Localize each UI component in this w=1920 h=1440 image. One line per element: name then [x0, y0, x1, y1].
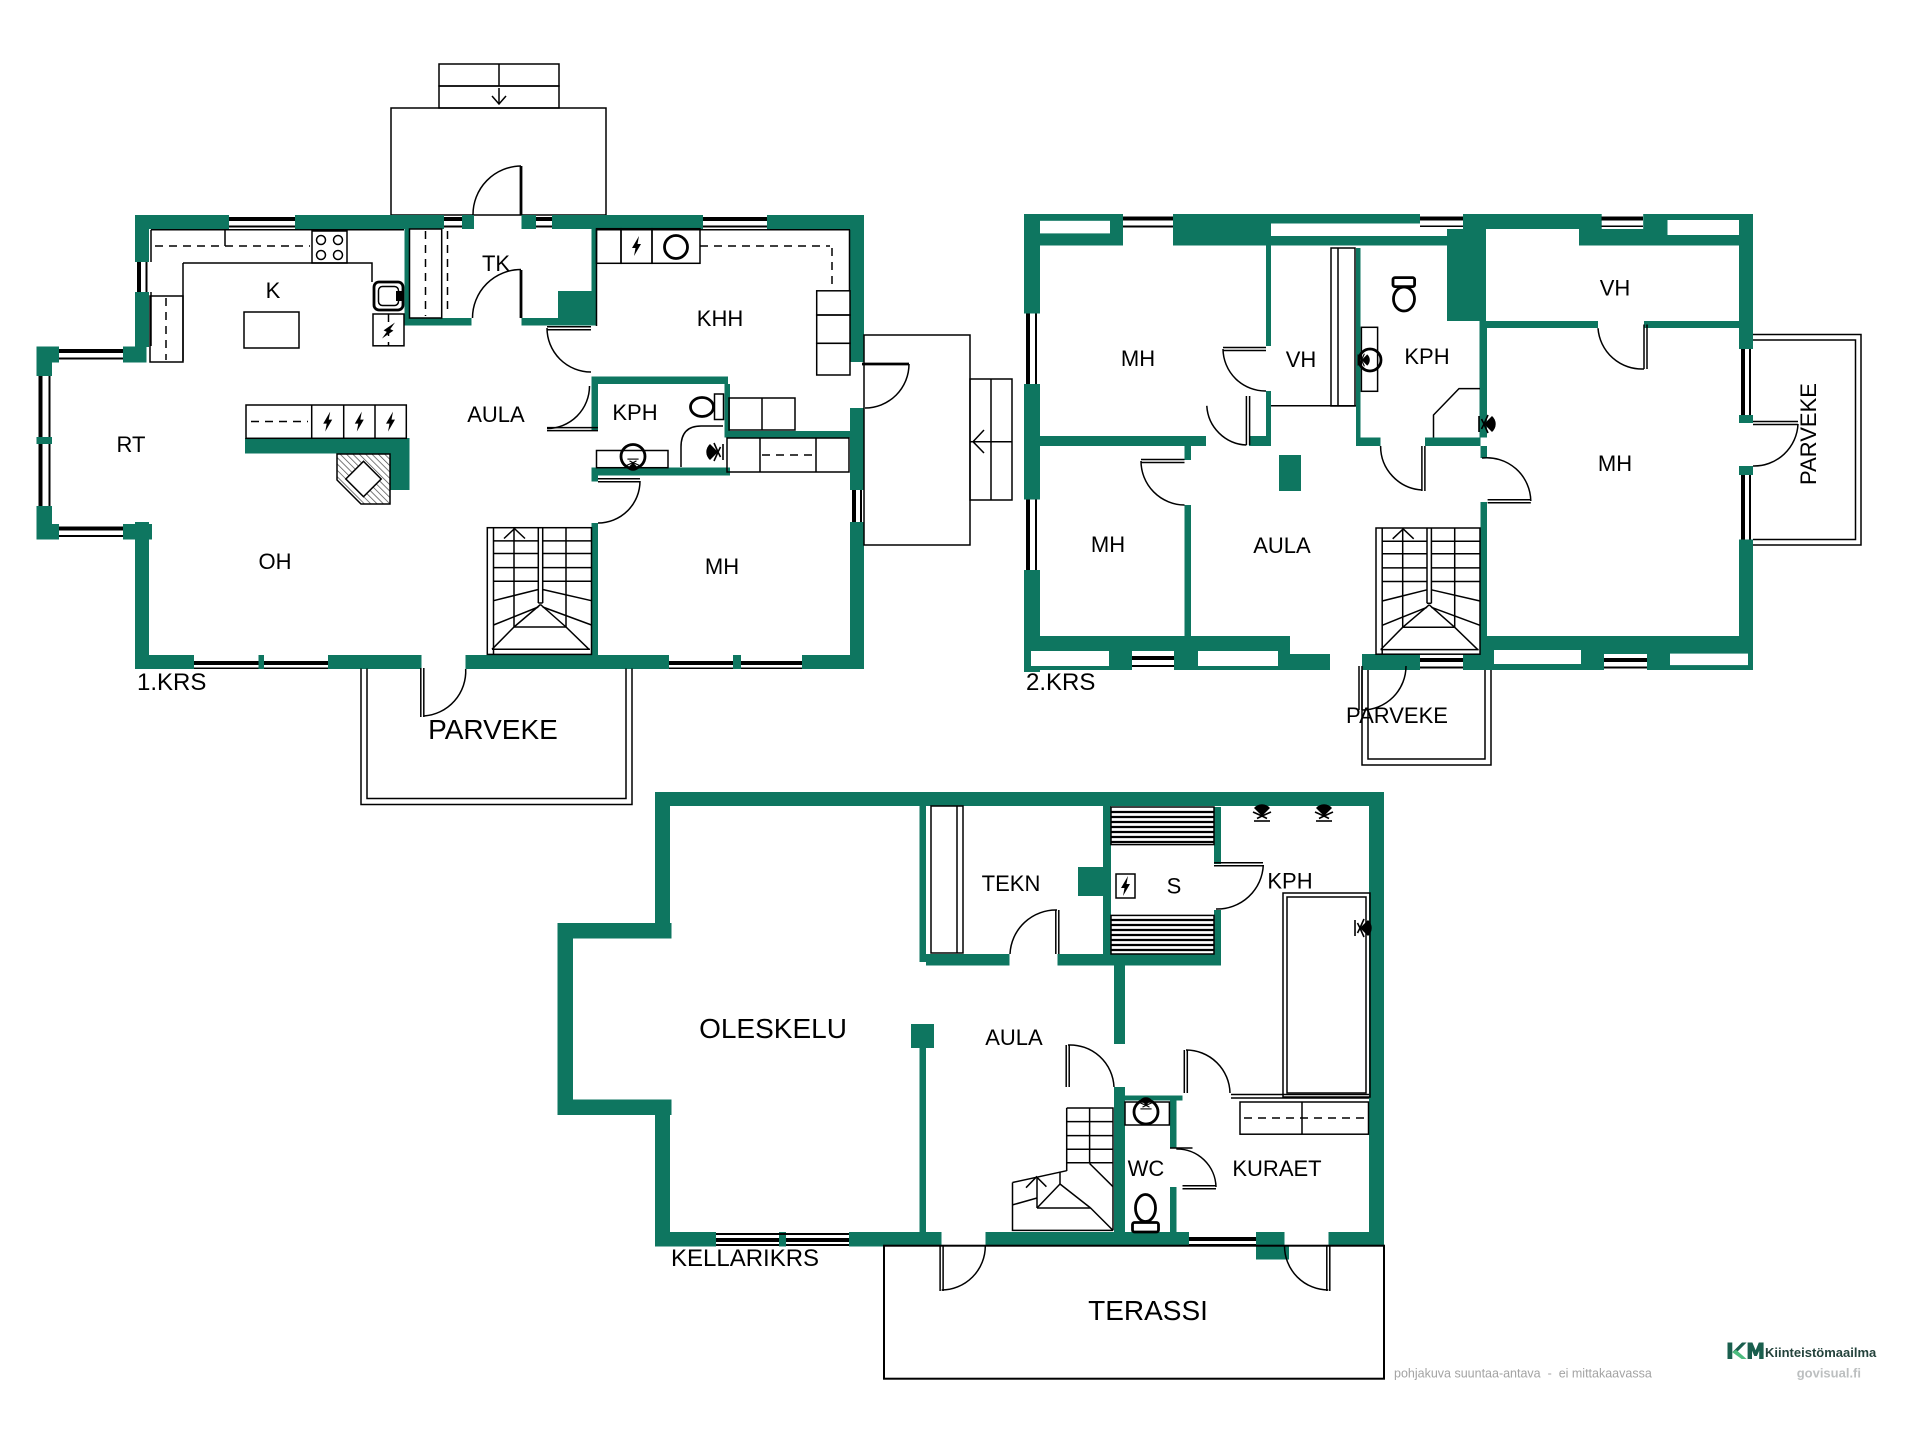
svg-text:AULA: AULA	[467, 402, 525, 427]
svg-text:pohjakuva suuntaa-antava - e: pohjakuva suuntaa-antava - ei mittakaava…	[1394, 1367, 1652, 1381]
svg-text:PARVEKE: PARVEKE	[1346, 703, 1448, 728]
svg-text:AULA: AULA	[1253, 533, 1311, 558]
svg-text:AULA: AULA	[985, 1025, 1043, 1050]
svg-text:K: K	[266, 278, 281, 303]
svg-text:MH: MH	[1598, 451, 1632, 476]
svg-text:Kiinteistömaailma: Kiinteistömaailma	[1765, 1345, 1877, 1360]
svg-text:KPH: KPH	[1267, 869, 1312, 894]
svg-text:1.KRS: 1.KRS	[137, 669, 206, 696]
svg-text:govisual.fi: govisual.fi	[1797, 1366, 1861, 1381]
svg-text:OH: OH	[259, 549, 292, 574]
svg-text:KHH: KHH	[697, 306, 743, 331]
svg-text:WC: WC	[1128, 1156, 1165, 1181]
svg-text:S: S	[1167, 874, 1182, 899]
svg-text:VH: VH	[1286, 347, 1317, 372]
svg-text:TK: TK	[482, 251, 510, 276]
svg-text:OLESKELU: OLESKELU	[699, 1013, 847, 1044]
svg-text:KPH: KPH	[1404, 344, 1449, 369]
svg-text:VH: VH	[1600, 276, 1631, 301]
svg-text:PARVEKE: PARVEKE	[428, 714, 558, 745]
svg-text:KURAET: KURAET	[1232, 1156, 1321, 1181]
svg-text:MH: MH	[705, 554, 739, 579]
svg-text:TERASSI: TERASSI	[1088, 1295, 1208, 1326]
svg-text:2.KRS: 2.KRS	[1026, 669, 1095, 696]
svg-text:RT: RT	[117, 432, 146, 457]
svg-text:PARVEKE: PARVEKE	[1796, 383, 1821, 485]
svg-text:KELLARIKRS: KELLARIKRS	[671, 1245, 819, 1272]
svg-text:MH: MH	[1091, 532, 1125, 557]
svg-text:MH: MH	[1121, 346, 1155, 371]
svg-text:KPH: KPH	[612, 400, 657, 425]
svg-text:TEKN: TEKN	[982, 871, 1041, 896]
